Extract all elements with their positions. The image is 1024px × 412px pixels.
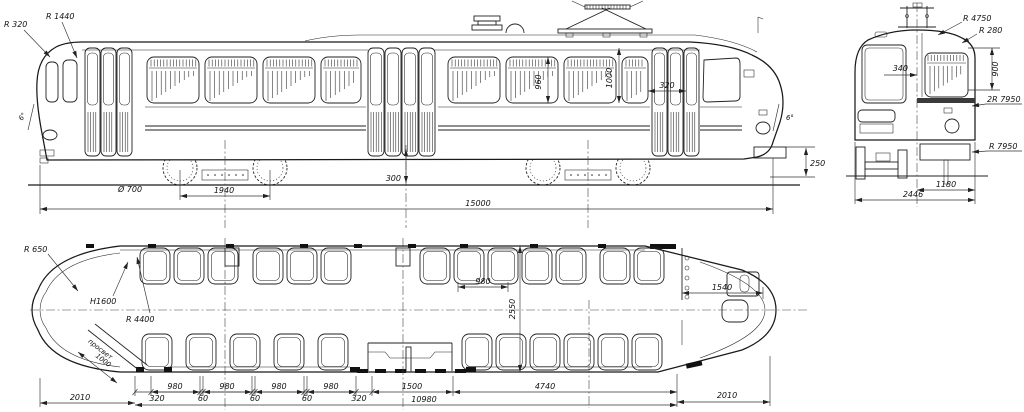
dim-arrowhead [404, 176, 408, 183]
pillar-mark [460, 244, 468, 248]
dim-arrowhead [40, 401, 47, 405]
dim-arrowhead [677, 400, 684, 404]
pillar-mark [598, 244, 606, 248]
pillar-mark [530, 244, 538, 248]
threshold-dash [455, 369, 466, 373]
dim-arrowhead [972, 149, 979, 154]
gearbox-bolt [235, 174, 237, 176]
underframe-box [920, 144, 970, 160]
threshold-dash [375, 369, 386, 373]
door-post [164, 367, 172, 372]
door-post [136, 367, 144, 372]
dim-arrowhead [670, 403, 677, 407]
dim-arrowhead [968, 198, 975, 202]
antenna-tip [758, 17, 763, 19]
ventilator [472, 25, 502, 30]
dim-arrowhead [180, 194, 187, 198]
pillar-mark [148, 244, 156, 248]
rear-slant-angle: 6° [17, 111, 28, 122]
chain-980-c: 980 [271, 382, 286, 391]
seat-pitch-980: 980 [475, 277, 490, 286]
gearbox-bolt [242, 174, 244, 176]
seat-bay-4740: 4740 [535, 382, 555, 391]
dim-arrowhead [968, 188, 975, 192]
dim-arrowhead [40, 207, 47, 211]
doors-span-10980: 10980 [411, 395, 436, 404]
dim-arrowhead [263, 194, 270, 198]
height-900: 900 [991, 61, 1000, 76]
body-width-2550: 2550 [508, 299, 517, 319]
dim-arrowhead [855, 198, 862, 202]
pillar-mark [354, 244, 362, 248]
pillar-mark [300, 244, 308, 248]
pillar-mark [86, 244, 94, 248]
gearbox-bolt [598, 174, 600, 176]
bumper-height-250: 250 [810, 159, 825, 168]
dim-arrowhead [766, 207, 773, 211]
dim-arrowhead [990, 48, 994, 55]
roof-radius-label: 2R 7950 [987, 95, 1021, 104]
radius-label-r650: R 650 [24, 245, 47, 254]
pillar-mark [226, 244, 234, 248]
half-width-1180: 1180 [936, 180, 956, 189]
vent-width-320: 320 [659, 81, 674, 90]
roof-dome [506, 24, 524, 33]
wheel-diameter-label: Ø 700 [117, 184, 142, 194]
pantograph-arm [602, 8, 646, 29]
tram-body-front [855, 3, 975, 140]
window-height-1000: 1000 [605, 68, 614, 88]
threshold-dash [395, 369, 406, 373]
axle [865, 162, 898, 169]
mid-door-1500: 1500 [402, 382, 422, 391]
pantograph-arm [566, 8, 610, 29]
threshold-dash [435, 369, 446, 373]
dim-arrowhead [135, 403, 142, 407]
dim-arrowhead [990, 83, 994, 90]
collector-horn [630, 1, 643, 7]
window-height-960: 960 [534, 74, 543, 89]
chain-320-a: 320 [149, 394, 164, 403]
side-radius-label: R 7950 [989, 142, 1017, 151]
door-post [466, 367, 476, 372]
blueprint-canvas: R 320 R 1440 6° Ø 700 1940 960 1000 320 … [0, 0, 1024, 412]
threshold-dash [357, 369, 368, 373]
total-length-15000: 15000 [465, 199, 490, 208]
dim-arrowhead [670, 390, 677, 394]
roof-equipment [472, 1, 652, 37]
gearbox-bolt [584, 174, 586, 176]
radius-label-h1600: H1600 [90, 297, 116, 306]
side-elevation-view: R 320 R 1440 6° Ø 700 1940 960 1000 320 … [0, 0, 840, 232]
wheel-disc [856, 147, 865, 179]
chain-60-b: 60 [250, 394, 260, 403]
dim-arrowhead [804, 148, 808, 155]
radius-label-r280: R 280 [979, 26, 1002, 35]
floor-plan-view: R 650 H1600 R 4400 просвет 1000 980 2550… [0, 232, 1024, 412]
cab-length-1540: 1540 [712, 283, 732, 292]
gearbox-bolt [214, 174, 216, 176]
gearbox-bolt [591, 174, 593, 176]
waist-band [917, 98, 975, 103]
chain-980-b: 980 [219, 382, 234, 391]
pillar-mark [408, 244, 416, 248]
ventilator [474, 16, 500, 21]
wheel-disc [898, 150, 907, 178]
gearbox-bolt [570, 174, 572, 176]
front-end-view: R 4750 R 280 340 900 2R 7950 R 7950 1180… [840, 0, 1024, 232]
dim-arrowhead [804, 169, 808, 176]
gearbox-bolt [605, 174, 607, 176]
dim-arrowhead [763, 400, 770, 404]
ventilator [478, 21, 496, 25]
chain-320-b: 320 [351, 394, 366, 403]
axle-base-label: 1940 [214, 186, 234, 195]
step-height-300: 300 [386, 174, 401, 183]
dim-arrowhead [128, 401, 135, 405]
radius-label-r320: R 320 [4, 20, 27, 29]
offset-340: 340 [893, 64, 908, 73]
pantograph-base [558, 29, 652, 33]
gearbox-bolt [207, 174, 209, 176]
overall-width-2446: 2446 [903, 190, 923, 199]
angle-ref [28, 104, 34, 130]
radius-label-r4750: R 4750 [963, 14, 991, 23]
trolley-head [913, 3, 922, 7]
threshold-dash [415, 369, 426, 373]
gearbox-bolt [221, 174, 223, 176]
gearbox-bolt [228, 174, 230, 176]
radius-label-r1440: R 1440 [46, 12, 74, 21]
radius-label-r4400: R 4400 [126, 315, 154, 324]
gearbox-bolt [577, 174, 579, 176]
body-outline [855, 30, 975, 140]
brake-unit [876, 153, 890, 161]
collector-horn [572, 1, 585, 7]
dim-arrowhead [453, 390, 460, 394]
rear-overhang-2010: 2010 [70, 393, 90, 402]
chain-980-a: 980 [167, 382, 182, 391]
chain-980-d: 980 [323, 382, 338, 391]
dim-arrowhead [110, 377, 118, 385]
front-slant-angle: 6° [786, 114, 794, 122]
chain-60-c: 60 [302, 394, 312, 403]
front-overhang-2010: 2010 [717, 391, 737, 400]
dim-arrowhead [446, 390, 453, 394]
chain-60-a: 60 [198, 394, 208, 403]
